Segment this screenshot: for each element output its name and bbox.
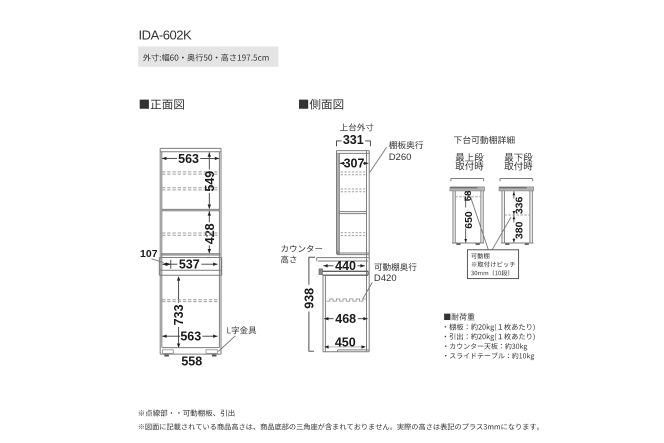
svg-text:D420: D420 [374, 273, 397, 284]
svg-text:450: 450 [335, 336, 356, 350]
svg-text:563: 563 [180, 330, 201, 344]
svg-text:733: 733 [172, 304, 186, 325]
svg-text:380: 380 [514, 221, 526, 239]
svg-text:331: 331 [343, 133, 364, 147]
svg-text:938: 938 [303, 288, 317, 309]
svg-text:107: 107 [140, 248, 158, 260]
svg-text:563: 563 [178, 152, 199, 166]
svg-text:IDA-602K: IDA-602K [139, 28, 193, 43]
svg-text:307: 307 [344, 157, 365, 171]
svg-text:D260: D260 [389, 152, 412, 163]
svg-text:468: 468 [335, 312, 356, 326]
svg-text:68: 68 [463, 191, 474, 202]
svg-text:549: 549 [203, 171, 217, 192]
svg-text:650: 650 [463, 211, 475, 229]
svg-text:537: 537 [179, 257, 200, 271]
svg-text:336: 336 [514, 196, 526, 214]
svg-text:428: 428 [203, 223, 217, 244]
svg-text:558: 558 [181, 354, 202, 368]
